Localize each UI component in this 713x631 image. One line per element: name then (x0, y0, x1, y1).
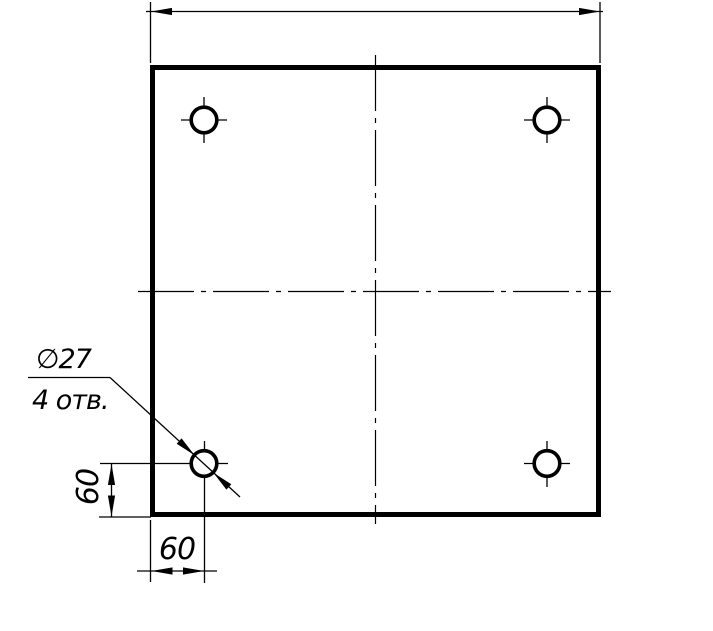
technical-drawing: 60 60 ∅27 4 отв. (0, 0, 713, 631)
hole-circle (534, 451, 560, 477)
dimension-value-vertical: 60 (71, 469, 106, 505)
drawing-canvas: 60 60 ∅27 4 отв. (0, 0, 713, 631)
hole-circle (534, 107, 560, 133)
hole-circle (191, 107, 217, 133)
dimension-value-horizontal: 60 (159, 532, 195, 567)
hole-count-label: 4 отв. (32, 385, 109, 416)
drawing-background (0, 0, 713, 631)
hole-diameter-label: ∅27 (36, 344, 92, 375)
